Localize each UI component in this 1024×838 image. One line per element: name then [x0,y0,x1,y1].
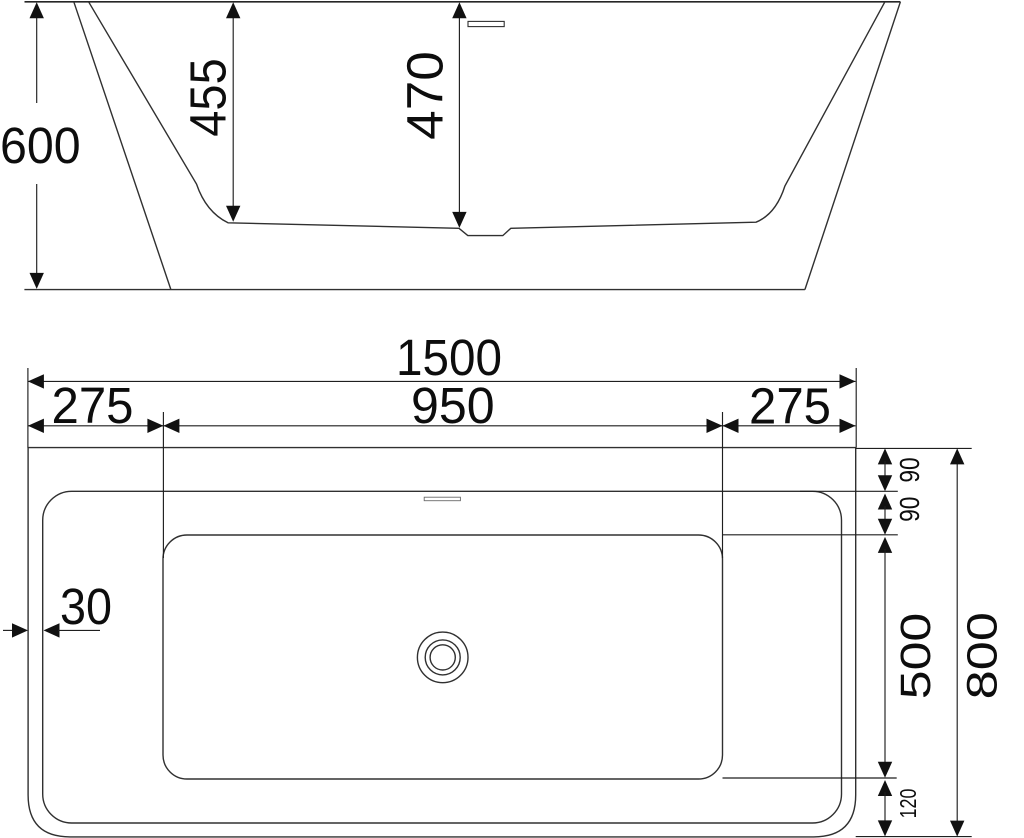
svg-text:275: 275 [749,378,831,435]
svg-text:275: 275 [52,377,134,434]
svg-text:600: 600 [0,117,81,174]
svg-text:950: 950 [411,377,495,434]
svg-text:90: 90 [894,497,925,522]
svg-text:455: 455 [180,58,237,137]
svg-text:30: 30 [60,578,112,635]
svg-text:120: 120 [895,789,921,819]
svg-text:500: 500 [892,613,940,700]
svg-text:90: 90 [894,457,925,482]
svg-text:470: 470 [397,51,454,140]
svg-text:800: 800 [959,612,1007,699]
